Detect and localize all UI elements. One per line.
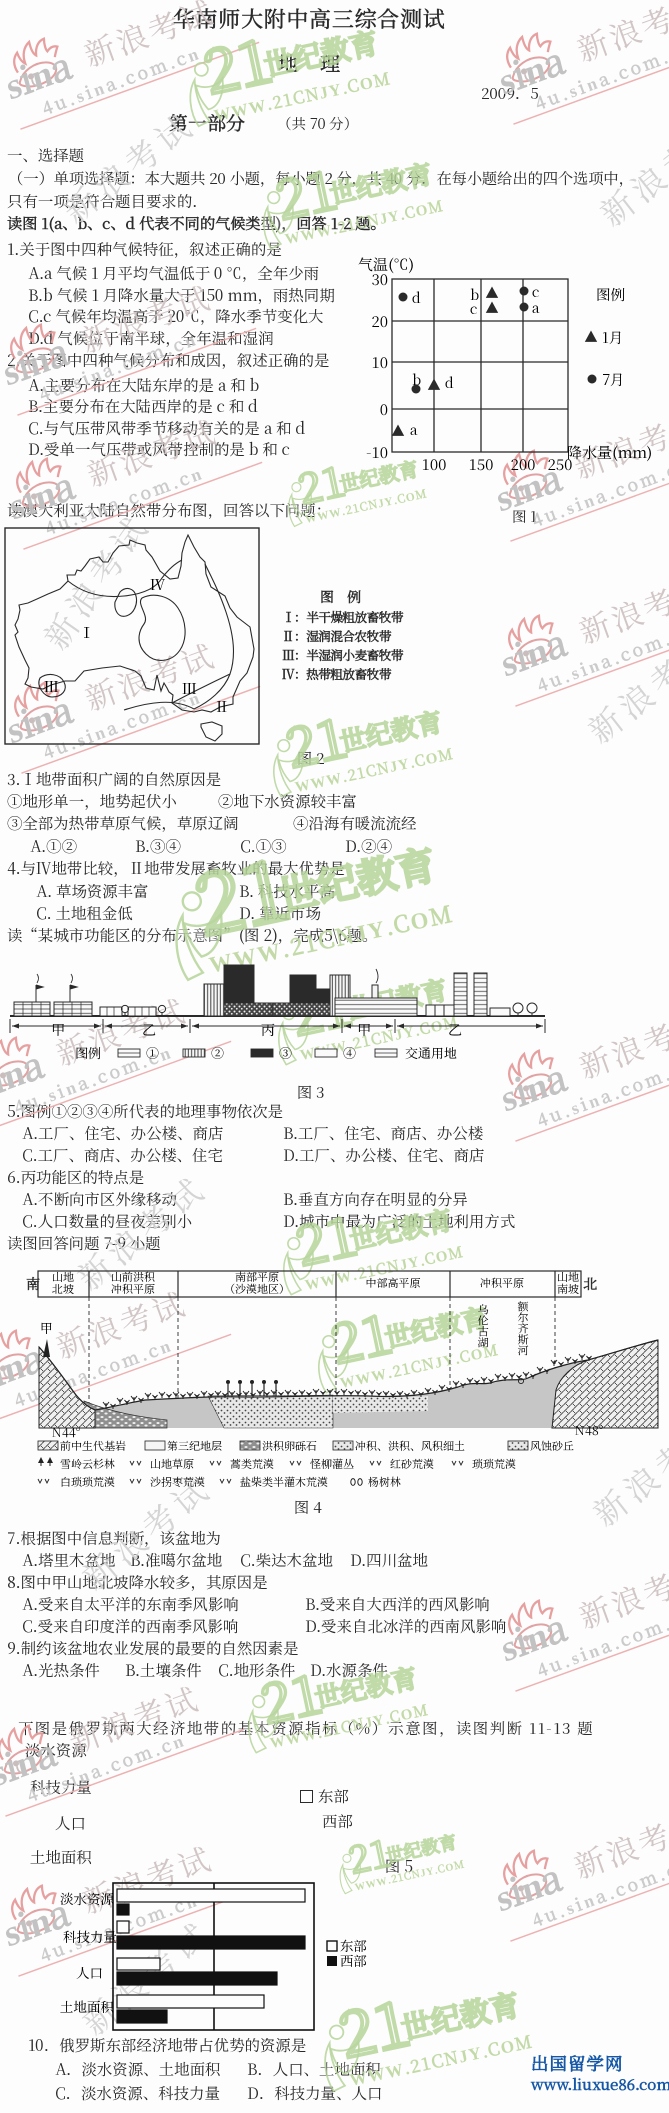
svg-text:南坡: 南坡: [557, 1281, 580, 1297]
svg-text:盐柴类半灌木荒漠: 盐柴类半灌木荒漠: [240, 1474, 328, 1490]
svg-text:冲积、洪积、风积细土: 冲积、洪积、风积细土: [355, 1438, 465, 1454]
svg-text:Ⅲ: Ⅲ: [182, 678, 197, 699]
svg-text:山地草原: 山地草原: [150, 1456, 194, 1472]
svg-text:图例: 图例: [75, 1043, 101, 1062]
svg-text:乙: 乙: [142, 1020, 156, 1040]
svg-text:①: ①: [146, 1043, 159, 1062]
svg-text:淡水资源: 淡水资源: [60, 1888, 114, 1908]
svg-text:风蚀砂丘: 风蚀砂丘: [530, 1438, 574, 1454]
svg-text:土地面积: 土地面积: [60, 1996, 114, 2016]
svg-text:北坡: 北坡: [52, 1281, 75, 1297]
svg-text:图例: 图例: [596, 284, 625, 305]
svg-text:d: d: [445, 373, 454, 393]
svg-text:洪积卵砾石: 洪积卵砾石: [262, 1438, 317, 1454]
svg-text:a: a: [410, 420, 418, 440]
svg-text:Ⅳ: Ⅳ: [150, 574, 165, 595]
svg-text:杨树林: 杨树林: [368, 1474, 401, 1490]
svg-text:③: ③: [279, 1043, 292, 1062]
svg-text:200: 200: [511, 454, 536, 475]
svg-text:白琐琐荒漠: 白琐琐荒漠: [60, 1474, 115, 1490]
svg-text:额尔齐斯河: 额尔齐斯河: [515, 1300, 531, 1357]
svg-text:（沙漠地区）: （沙漠地区）: [224, 1281, 290, 1297]
svg-text:④: ④: [343, 1043, 356, 1062]
svg-text:Ⅲ: Ⅲ: [44, 676, 59, 697]
svg-text:-10: -10: [366, 442, 388, 463]
svg-text:Ⅰ: Ⅰ: [79, 622, 94, 643]
svg-text:甲: 甲: [40, 1318, 53, 1337]
svg-text:西部: 西部: [340, 1950, 367, 1970]
svg-text:中部高平原: 中部高平原: [366, 1275, 421, 1291]
svg-text:蒿类荒漠: 蒿类荒漠: [230, 1456, 274, 1472]
svg-text:0: 0: [380, 399, 388, 420]
svg-text:降水量(mm): 降水量(mm): [567, 442, 652, 463]
svg-text:②: ②: [211, 1043, 224, 1062]
svg-text:怪柳灌丛: 怪柳灌丛: [310, 1456, 354, 1472]
svg-text:乙: 乙: [448, 1020, 462, 1040]
svg-text:丙: 丙: [261, 1020, 275, 1040]
svg-text:科技力量: 科技力量: [63, 1926, 117, 1946]
svg-text:N48°: N48°: [575, 1421, 604, 1439]
svg-text:20: 20: [371, 311, 388, 332]
svg-text:a: a: [532, 298, 540, 318]
svg-text:人口: 人口: [76, 1962, 103, 1982]
svg-text:冲积平原: 冲积平原: [480, 1275, 524, 1291]
svg-text:30: 30: [371, 269, 388, 290]
svg-text:甲: 甲: [357, 1020, 371, 1040]
svg-text:交通用地: 交通用地: [405, 1043, 457, 1062]
svg-text:第三纪地层: 第三纪地层: [167, 1438, 222, 1454]
svg-text:100: 100: [422, 454, 447, 475]
svg-text:红砂荒漠: 红砂荒漠: [390, 1456, 434, 1472]
svg-text:10: 10: [371, 352, 388, 373]
svg-text:150: 150: [469, 454, 494, 475]
svg-text:Ⅱ: Ⅱ: [214, 696, 229, 717]
svg-text:7月: 7月: [602, 369, 624, 390]
svg-text:1月: 1月: [602, 327, 623, 348]
svg-text:冲积平原: 冲积平原: [111, 1281, 155, 1297]
svg-text:前中生代基岩: 前中生代基岩: [60, 1438, 126, 1454]
svg-text:雪岭云杉林: 雪岭云杉林: [60, 1456, 115, 1472]
svg-text:乌伦古湖: 乌伦古湖: [475, 1303, 491, 1348]
svg-text:琐琐荒漠: 琐琐荒漠: [472, 1456, 516, 1472]
svg-text:沙拐枣荒漠: 沙拐枣荒漠: [150, 1474, 205, 1490]
svg-text:甲: 甲: [51, 1020, 65, 1040]
svg-text:c: c: [470, 299, 478, 319]
svg-text:d: d: [412, 288, 421, 308]
